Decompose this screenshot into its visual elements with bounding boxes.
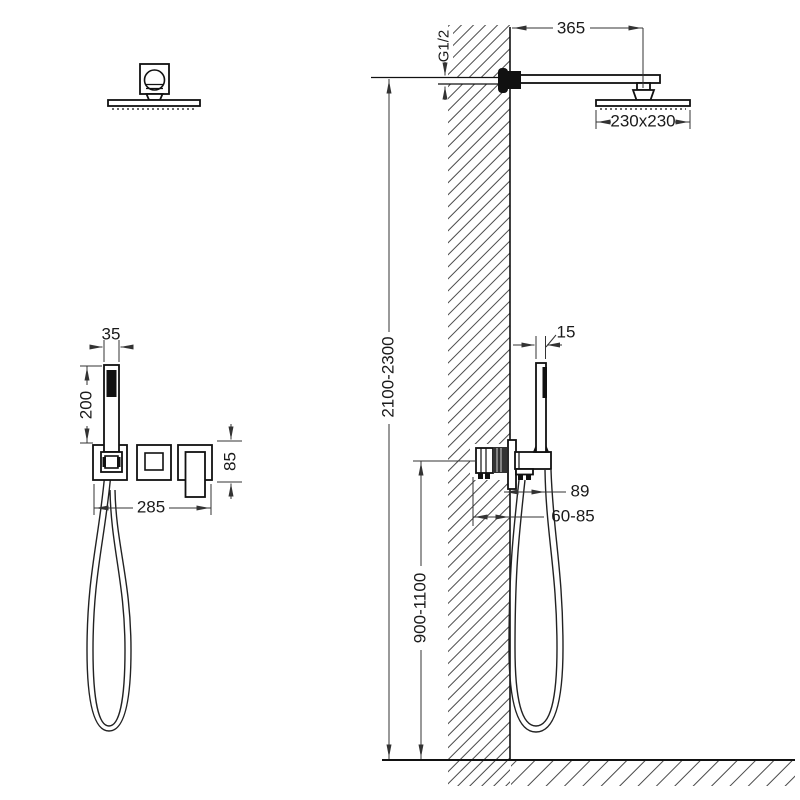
dim-hand-width: 35 <box>90 325 133 363</box>
valve-cap <box>476 448 493 473</box>
dim-hand-thickness: 15 <box>513 323 575 360</box>
handshower-face-edge <box>543 367 548 398</box>
diverter-escutcheon <box>137 445 171 480</box>
dim-embed-depth-label: 60-85 <box>551 507 594 526</box>
hose-outlet <box>516 469 533 475</box>
technical-drawing: 365 G1/2 230x230 2100-2300 900-1100 <box>0 0 800 800</box>
dim-head-size-label: 230x230 <box>610 112 675 131</box>
shower-installation-diagram: 365 G1/2 230x230 2100-2300 900-1100 <box>0 0 800 800</box>
lever-handle <box>186 452 206 497</box>
dim-panel-height-label: 85 <box>221 452 240 471</box>
supply-pipe <box>371 78 505 85</box>
dim-panel-height: 85 <box>217 424 242 499</box>
dim-hand-length: 200 <box>77 366 103 443</box>
rain-head-front-view <box>108 64 200 109</box>
arm-wall-fitting <box>503 71 521 89</box>
handshower-front-view <box>101 365 122 472</box>
dim-hand-length-label: 200 <box>77 391 96 419</box>
wall-section <box>382 25 795 786</box>
dim-arm-length-label: 365 <box>557 19 585 38</box>
floor-hatch <box>511 761 795 786</box>
valve-body <box>493 447 507 473</box>
handshower-face <box>107 370 117 397</box>
dim-panel-width-label: 285 <box>137 498 165 517</box>
dim-holder-offset-label: 89 <box>571 482 590 501</box>
spout-body <box>515 452 551 469</box>
dim-install-height-label: 2100-2300 <box>379 336 398 417</box>
dim-pipe-thread-label: G1/2 <box>436 30 453 63</box>
dim-hand-thickness-label: 15 <box>557 323 576 342</box>
handshower-side-view <box>534 363 548 452</box>
dim-head-size: 230x230 <box>596 110 690 131</box>
dim-hand-width-label: 35 <box>102 325 121 344</box>
wall-hatch <box>448 25 510 786</box>
dim-valve-height-label: 900-1100 <box>411 573 430 644</box>
dim-install-height: 2100-2300 <box>379 79 398 759</box>
